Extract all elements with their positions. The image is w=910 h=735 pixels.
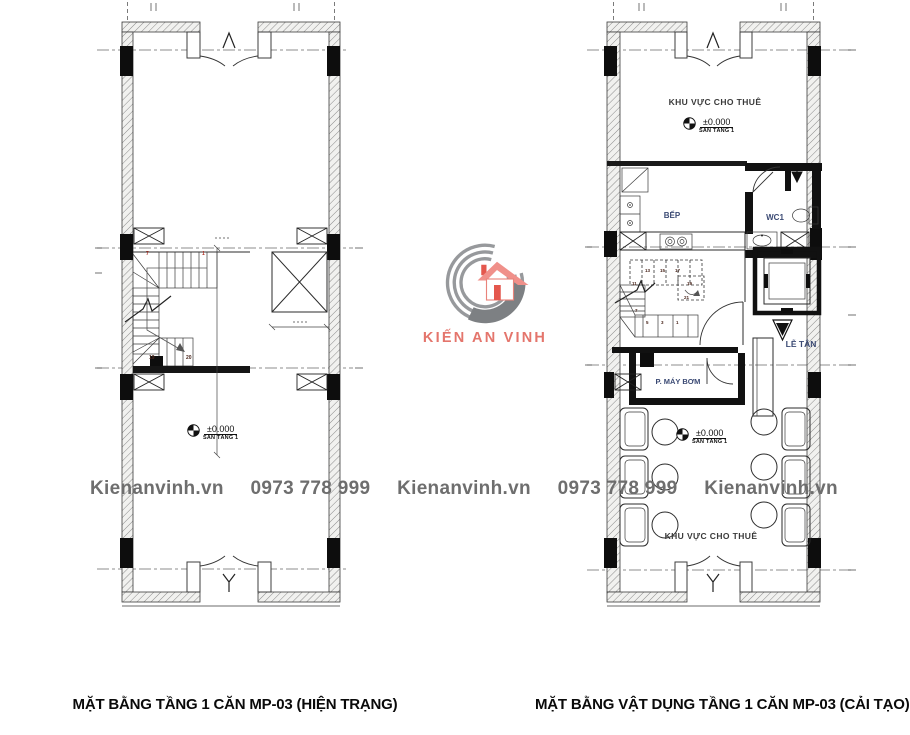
level-value: ±0.000 (693, 428, 726, 439)
label-wc1: WC1 (766, 213, 784, 222)
logo-house-icon (434, 240, 536, 324)
stair-number: 13 (645, 268, 650, 273)
stair-number: 19 (687, 281, 692, 286)
level-value: ±0.000 (700, 117, 733, 128)
stair-number: 3 (661, 320, 664, 325)
label-pump-room: P. MÁY BƠM (656, 377, 701, 386)
label-kitchen: BẾP (664, 211, 680, 220)
void-xbox (272, 252, 327, 312)
entry-door-bottom (187, 556, 271, 592)
watermark-site: Kienanvinh.vn (90, 478, 224, 500)
level-floor: SÀN TẦNG 1 (699, 128, 734, 135)
label-reception: LỄ TÂN (786, 339, 817, 349)
level-marker-right-top: ±0.000 SÀN TẦNG 1 (683, 117, 734, 135)
level-marker-left-plan: ±0.000 SÀN TẦNG 1 (187, 424, 238, 442)
entry-door-top (187, 32, 271, 66)
stair-number: 11 (632, 281, 637, 286)
level-target-icon (187, 424, 200, 437)
stair-number: 1 (676, 320, 679, 325)
left-plan-title: MẶT BẰNG TẦNG 1 CĂN MP-03 (HIỆN TRẠNG) (55, 696, 415, 713)
watermark-band: Kienanvinh.vn 0973 778 999 Kienanvinh.vn… (90, 478, 838, 500)
level-value: ±0.000 (204, 424, 237, 435)
stair-number: 21 (684, 295, 689, 300)
entry-door-top (675, 32, 752, 66)
level-target-icon (683, 117, 696, 130)
stair-number: 19 (149, 356, 155, 361)
exterior-walls (122, 22, 340, 606)
reception-desk (753, 338, 773, 416)
level-marker-right-bottom: ±0.000 SÀN TẦNG 1 (676, 428, 727, 446)
level-floor: SÀN TẦNG 1 (203, 435, 238, 442)
stair-number: 15 (660, 268, 665, 273)
label-rental-area-bottom: KHU VỰC CHO THUÊ (665, 531, 758, 541)
stair-number: 5 (646, 320, 649, 325)
stair-number: 7 (146, 252, 149, 257)
watermark-site: Kienanvinh.vn (704, 478, 838, 500)
stair-number: 1 (202, 252, 205, 257)
stair-number: 17 (675, 268, 680, 273)
label-rental-area-top: KHU VỰC CHO THUÊ (669, 97, 762, 107)
entry-door-bottom (675, 556, 752, 592)
stair-number: 7 (635, 308, 638, 313)
stair-number: 20 (186, 356, 192, 361)
right-plan-title: MẶT BẰNG VẬT DỤNG TẦNG 1 CĂN MP-03 (CẢI … (535, 696, 895, 713)
logo-brand-text: KIẾN AN VINH (403, 330, 567, 346)
level-floor: SÀN TẦNG 1 (692, 439, 727, 446)
left-floor-plan-drawing (95, 0, 365, 620)
level-target-icon (676, 428, 689, 441)
right-floor-plan-drawing (585, 0, 865, 620)
watermark-phone: 0973 778 999 (251, 478, 371, 500)
staircase (612, 247, 745, 353)
kitchen (607, 161, 747, 250)
watermark-phone: 0973 778 999 (558, 478, 678, 500)
company-logo: KIẾN AN VINH (403, 240, 567, 346)
watermark-site: Kienanvinh.vn (397, 478, 531, 500)
drawing-canvas: KHU VỰC CHO THUÊ BẾP WC1 LỄ TÂN P. MÁY B… (0, 0, 910, 735)
